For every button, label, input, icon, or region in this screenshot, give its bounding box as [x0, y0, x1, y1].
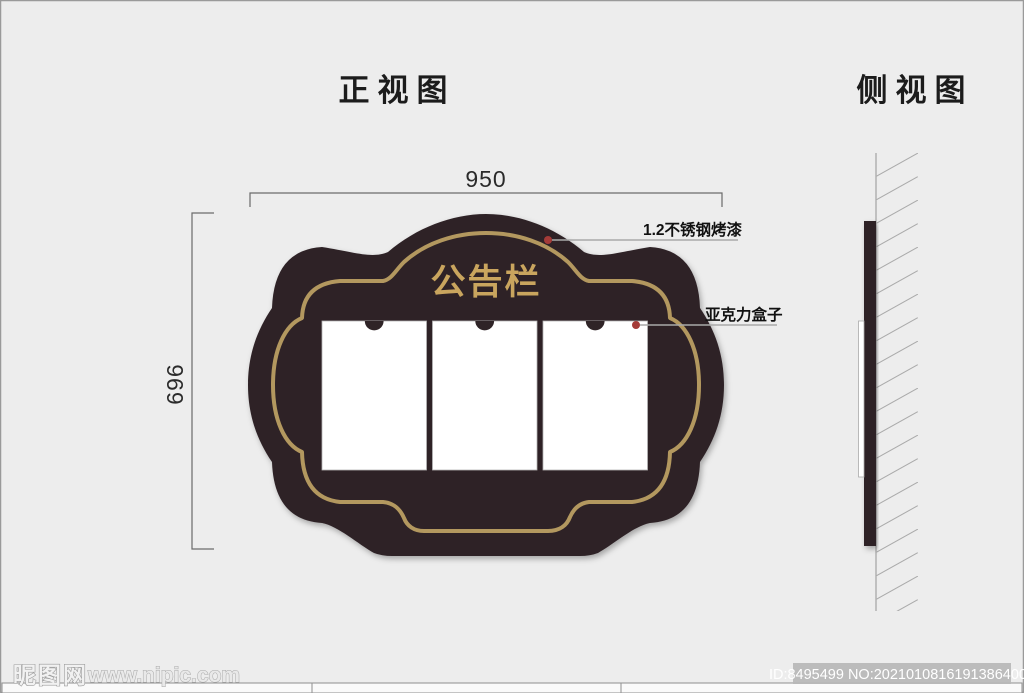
- acrylic-panel: [543, 321, 648, 470]
- front-view-title: 正视图: [339, 73, 456, 108]
- height-dimension-value: 696: [162, 363, 188, 404]
- board-side-profile: [864, 221, 876, 546]
- watermark-url: www.nipic.com: [87, 664, 240, 687]
- acrylic-panel: [322, 321, 427, 470]
- watermark-logo: 昵图网: [13, 662, 88, 688]
- width-dimension-bracket: [250, 193, 722, 207]
- board-title: 公告栏: [430, 263, 541, 302]
- wall-hatching: [876, 153, 918, 611]
- steel-annotation-label: 1.2不锈钢烤漆: [643, 220, 743, 239]
- acrylic-panel: [433, 321, 538, 470]
- width-dimension-value: 950: [465, 166, 506, 192]
- side-view-title: 侧视图: [857, 73, 974, 108]
- acrylic-annotation-dot: [632, 321, 640, 329]
- acrylic-side-profile: [859, 321, 865, 477]
- signage-design-drawing: 正视图 侧视图 950 696 公告栏 1.2不锈钢烤漆 亚克力盒子: [0, 0, 1024, 693]
- steel-annotation-dot: [544, 236, 552, 244]
- height-dimension-bracket: [192, 213, 214, 549]
- side-view: [859, 153, 919, 611]
- acrylic-panels: [322, 321, 648, 470]
- acrylic-annotation-label: 亚克力盒子: [705, 305, 783, 324]
- image-id-text: ID:8495499 NO:20210108161913864000: [769, 667, 1024, 683]
